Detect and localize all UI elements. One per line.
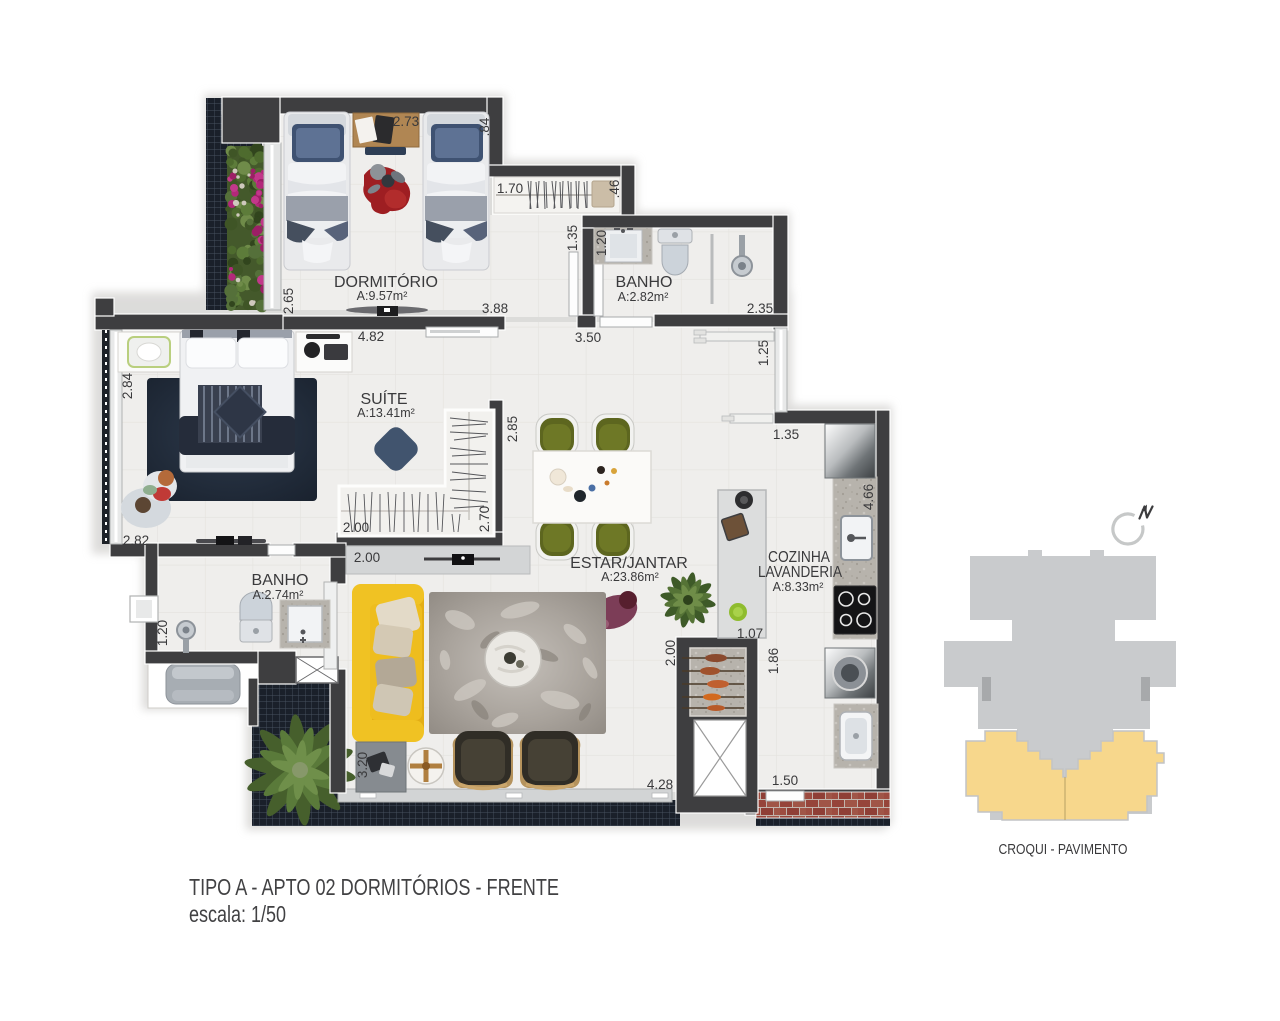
svg-text:2.70: 2.70 bbox=[477, 506, 492, 532]
svg-text:1.20: 1.20 bbox=[594, 230, 609, 256]
svg-text:TIPO A - APTO 02 DORMITÓRIOS: TIPO A - APTO 02 DORMITÓRIOS - FRENTE bbox=[189, 874, 559, 900]
svg-text:.46: .46 bbox=[607, 180, 622, 199]
svg-text:BANHO: BANHO bbox=[252, 572, 309, 589]
svg-text:2.00: 2.00 bbox=[663, 640, 678, 666]
svg-text:LAVANDERIA: LAVANDERIA bbox=[758, 564, 842, 581]
svg-text:A:2.82m²: A:2.82m² bbox=[618, 290, 669, 304]
svg-text:1.35: 1.35 bbox=[773, 427, 799, 442]
svg-text:1.25: 1.25 bbox=[756, 340, 771, 366]
svg-text:1.86: 1.86 bbox=[766, 648, 781, 674]
svg-text:2.65: 2.65 bbox=[281, 288, 296, 314]
svg-text:2.84: 2.84 bbox=[120, 372, 135, 399]
svg-text:4.82: 4.82 bbox=[358, 329, 384, 344]
svg-text:A:2.74m²: A:2.74m² bbox=[253, 588, 304, 602]
svg-text:2.00: 2.00 bbox=[354, 550, 380, 565]
svg-text:1.35: 1.35 bbox=[565, 225, 580, 251]
svg-text:escala: 1/50: escala: 1/50 bbox=[189, 901, 286, 927]
svg-text:A:23.86m²: A:23.86m² bbox=[601, 570, 659, 584]
svg-text:2.00: 2.00 bbox=[343, 520, 369, 535]
svg-text:2.35: 2.35 bbox=[747, 301, 773, 316]
svg-text:4.28: 4.28 bbox=[647, 777, 673, 792]
svg-text:BANHO: BANHO bbox=[616, 274, 673, 291]
svg-text:1.07: 1.07 bbox=[737, 626, 763, 641]
svg-text:A:8.33m²: A:8.33m² bbox=[773, 580, 824, 594]
svg-text:1.50: 1.50 bbox=[772, 773, 798, 788]
svg-text:CROQUI - PAVIMENTO: CROQUI - PAVIMENTO bbox=[999, 841, 1128, 858]
svg-text:3.50: 3.50 bbox=[575, 330, 601, 345]
svg-text:1.20: 1.20 bbox=[155, 620, 170, 646]
svg-text:.84: .84 bbox=[477, 117, 492, 136]
svg-text:3.88: 3.88 bbox=[482, 301, 508, 316]
svg-text:A:9.57m²: A:9.57m² bbox=[357, 289, 408, 303]
svg-text:A:13.41m²: A:13.41m² bbox=[357, 406, 415, 420]
svg-text:2.85: 2.85 bbox=[505, 416, 520, 442]
svg-text:4.66: 4.66 bbox=[861, 484, 876, 510]
svg-text:2.73: 2.73 bbox=[393, 114, 419, 129]
svg-text:1.70: 1.70 bbox=[497, 181, 523, 196]
svg-text:2.82: 2.82 bbox=[123, 533, 149, 548]
svg-text:3.20: 3.20 bbox=[355, 752, 370, 778]
